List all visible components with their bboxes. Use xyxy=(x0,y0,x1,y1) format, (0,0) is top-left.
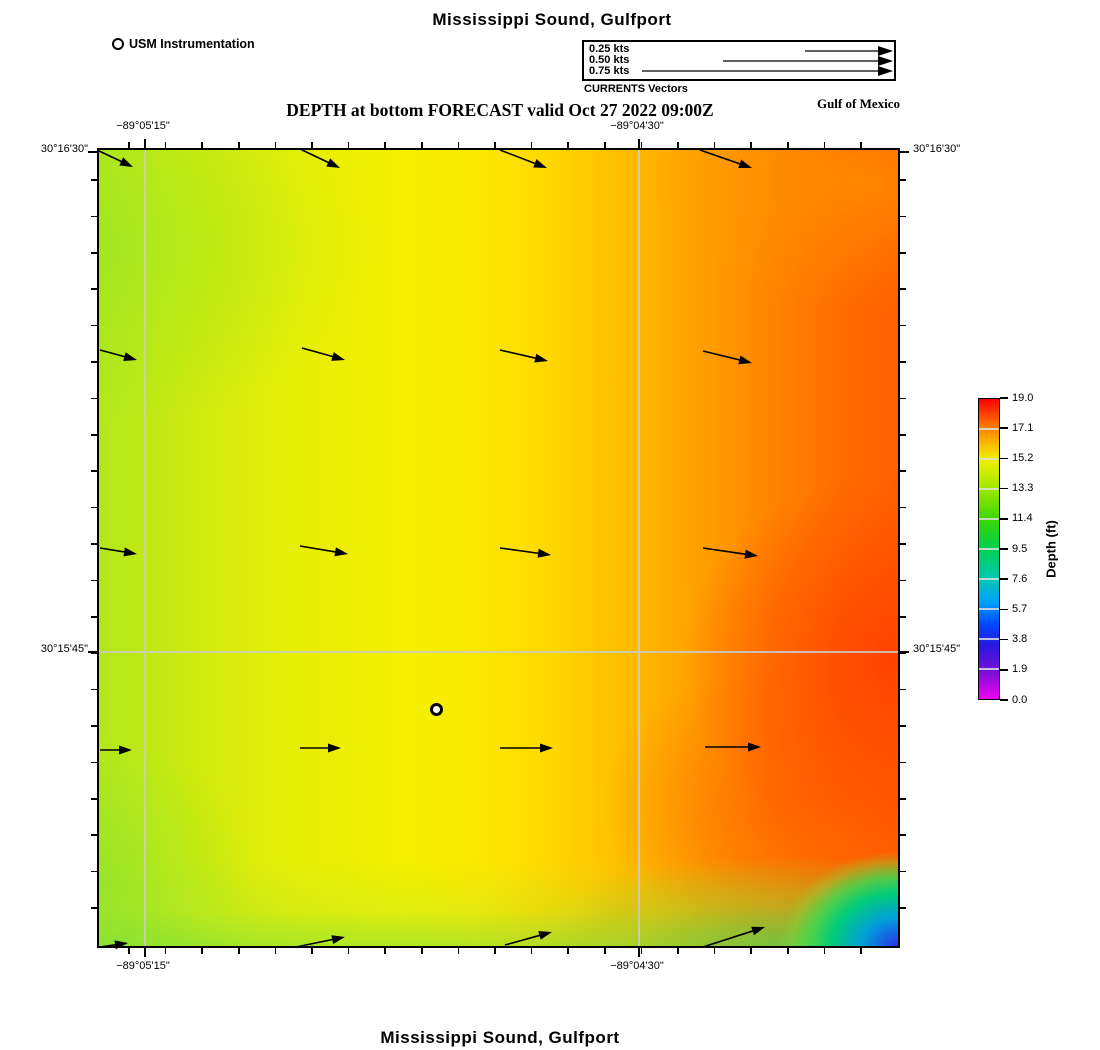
colorbar-separator xyxy=(979,548,999,550)
minor-tick xyxy=(677,142,679,148)
map-area xyxy=(97,148,900,948)
colorbar-tick-label: 15.2 xyxy=(1012,452,1033,464)
minor-tick xyxy=(900,798,906,800)
region-label: Gulf of Mexico xyxy=(780,96,900,112)
minor-tick xyxy=(900,834,906,836)
colorbar-tick xyxy=(1000,458,1008,460)
minor-tick xyxy=(91,798,97,800)
minor-tick xyxy=(900,398,906,400)
minor-tick xyxy=(91,616,97,618)
station-legend-label: USM Instrumentation xyxy=(129,37,255,51)
colorbar-tick-label: 9.5 xyxy=(1012,543,1027,555)
minor-tick xyxy=(91,543,97,545)
gridline-horizontal xyxy=(99,651,898,653)
minor-tick xyxy=(91,470,97,472)
minor-tick xyxy=(900,871,906,873)
minor-tick xyxy=(165,142,167,148)
colorbar-tick xyxy=(1000,669,1008,671)
colorbar-tick xyxy=(1000,548,1008,550)
major-tick xyxy=(88,151,97,153)
minor-tick xyxy=(900,179,906,181)
colorbar-tick xyxy=(1000,578,1008,580)
minor-tick xyxy=(238,948,240,954)
colorbar-tick-label: 11.4 xyxy=(1012,512,1033,524)
major-tick xyxy=(144,948,146,957)
major-tick xyxy=(88,651,97,653)
forecast-subtitle: DEPTH at bottom FORECAST valid Oct 27 20… xyxy=(150,100,850,121)
minor-tick xyxy=(91,907,97,909)
minor-tick xyxy=(567,948,569,954)
minor-tick xyxy=(900,361,906,363)
minor-tick xyxy=(900,762,906,764)
colorbar-separator xyxy=(979,578,999,580)
minor-tick xyxy=(275,948,277,954)
colorbar-tick xyxy=(1000,518,1008,520)
colorbar-title: Depth (ft) xyxy=(1044,520,1059,578)
speed-label-050: 0.50 kts xyxy=(589,55,629,66)
minor-tick xyxy=(91,834,97,836)
minor-tick xyxy=(91,871,97,873)
x-axis-label-top: −89°04'30" xyxy=(577,120,697,132)
minor-tick xyxy=(824,948,826,954)
minor-tick xyxy=(531,142,533,148)
minor-tick xyxy=(128,948,130,954)
minor-tick xyxy=(91,580,97,582)
minor-tick xyxy=(824,142,826,148)
minor-tick xyxy=(384,142,386,148)
minor-tick xyxy=(201,948,203,954)
minor-tick xyxy=(604,142,606,148)
y-axis-label-right: 30°16'30" xyxy=(913,143,1003,155)
colorbar-tick-label: 13.3 xyxy=(1012,482,1033,494)
minor-tick xyxy=(900,543,906,545)
y-axis-label-left: 30°16'30" xyxy=(10,143,88,155)
minor-tick xyxy=(91,507,97,509)
major-tick xyxy=(638,948,640,957)
minor-tick xyxy=(641,142,643,148)
colorbar-separator xyxy=(979,608,999,610)
figure: Mississippi Sound, Gulfport USM Instrume… xyxy=(0,0,1100,1050)
speed-labels: 0.25 kts 0.50 kts 0.75 kts xyxy=(589,44,629,76)
minor-tick xyxy=(900,616,906,618)
minor-tick xyxy=(900,907,906,909)
minor-tick xyxy=(458,948,460,954)
minor-tick xyxy=(91,216,97,218)
minor-tick xyxy=(900,216,906,218)
minor-tick xyxy=(165,948,167,954)
station-marker xyxy=(430,703,443,716)
minor-tick xyxy=(900,507,906,509)
major-tick xyxy=(638,139,640,148)
minor-tick xyxy=(421,142,423,148)
colorbar-tick-label: 17.1 xyxy=(1012,422,1033,434)
figure-title-top: Mississippi Sound, Gulfport xyxy=(202,10,902,30)
minor-tick xyxy=(458,142,460,148)
colorbar-separator xyxy=(979,518,999,520)
minor-tick xyxy=(238,142,240,148)
colorbar-tick xyxy=(1000,639,1008,641)
minor-tick xyxy=(91,252,97,254)
minor-tick xyxy=(750,142,752,148)
colorbar-separator xyxy=(979,638,999,640)
minor-tick xyxy=(900,252,906,254)
colorbar-tick-label: 5.7 xyxy=(1012,603,1027,615)
minor-tick xyxy=(531,948,533,954)
gridline-vertical xyxy=(144,150,146,946)
minor-tick xyxy=(128,142,130,148)
minor-tick xyxy=(860,948,862,954)
minor-tick xyxy=(201,142,203,148)
minor-tick xyxy=(494,948,496,954)
station-marker-icon xyxy=(112,38,124,50)
major-tick xyxy=(144,139,146,148)
colorbar-separator xyxy=(979,428,999,430)
colorbar-separator xyxy=(979,668,999,670)
minor-tick xyxy=(91,398,97,400)
minor-tick xyxy=(421,948,423,954)
minor-tick xyxy=(860,142,862,148)
major-tick xyxy=(900,651,909,653)
minor-tick xyxy=(714,948,716,954)
minor-tick xyxy=(567,142,569,148)
minor-tick xyxy=(348,142,350,148)
colorbar-tick xyxy=(1000,427,1008,429)
colorbar-tick-label: 7.6 xyxy=(1012,573,1027,585)
x-axis-label-bottom: −89°04'30" xyxy=(577,960,697,972)
minor-tick xyxy=(900,725,906,727)
minor-tick xyxy=(91,179,97,181)
minor-tick xyxy=(787,142,789,148)
minor-tick xyxy=(900,288,906,290)
minor-tick xyxy=(348,948,350,954)
colorbar-tick-label: 1.9 xyxy=(1012,663,1027,675)
minor-tick xyxy=(384,948,386,954)
minor-tick xyxy=(641,948,643,954)
x-axis-label-bottom: −89°05'15" xyxy=(83,960,203,972)
currents-vectors-caption: CURRENTS Vectors xyxy=(584,83,688,95)
minor-tick xyxy=(714,142,716,148)
figure-title-bottom: Mississippi Sound, Gulfport xyxy=(150,1028,850,1048)
minor-tick xyxy=(900,689,906,691)
minor-tick xyxy=(900,580,906,582)
y-axis-label-right: 30°15'45" xyxy=(913,643,1003,655)
minor-tick xyxy=(494,142,496,148)
colorbar-separator xyxy=(979,488,999,490)
minor-tick xyxy=(900,470,906,472)
minor-tick xyxy=(677,948,679,954)
colorbar-tick-label: 3.8 xyxy=(1012,633,1027,645)
minor-tick xyxy=(311,948,313,954)
colorbar-separator xyxy=(979,458,999,460)
colorbar-tick-label: 0.0 xyxy=(1012,694,1027,706)
gridline-vertical xyxy=(638,150,640,946)
minor-tick xyxy=(787,948,789,954)
minor-tick xyxy=(91,689,97,691)
minor-tick xyxy=(91,434,97,436)
x-axis-label-top: −89°05'15" xyxy=(83,120,203,132)
minor-tick xyxy=(604,948,606,954)
colorbar-tick-label: 19.0 xyxy=(1012,392,1033,404)
minor-tick xyxy=(750,948,752,954)
colorbar-tick xyxy=(1000,699,1008,701)
minor-tick xyxy=(275,142,277,148)
station-legend: USM Instrumentation xyxy=(112,37,255,51)
speed-label-075: 0.75 kts xyxy=(589,66,629,77)
minor-tick xyxy=(91,725,97,727)
minor-tick xyxy=(91,361,97,363)
minor-tick xyxy=(900,434,906,436)
minor-tick xyxy=(91,288,97,290)
minor-tick xyxy=(900,325,906,327)
minor-tick xyxy=(91,325,97,327)
minor-tick xyxy=(91,762,97,764)
y-axis-label-left: 30°15'45" xyxy=(10,643,88,655)
colorbar-tick xyxy=(1000,488,1008,490)
colorbar-tick xyxy=(1000,397,1008,399)
major-tick xyxy=(900,151,909,153)
current-speed-legend-box: 0.25 kts 0.50 kts 0.75 kts xyxy=(582,40,896,81)
minor-tick xyxy=(311,142,313,148)
colorbar-tick xyxy=(1000,609,1008,611)
